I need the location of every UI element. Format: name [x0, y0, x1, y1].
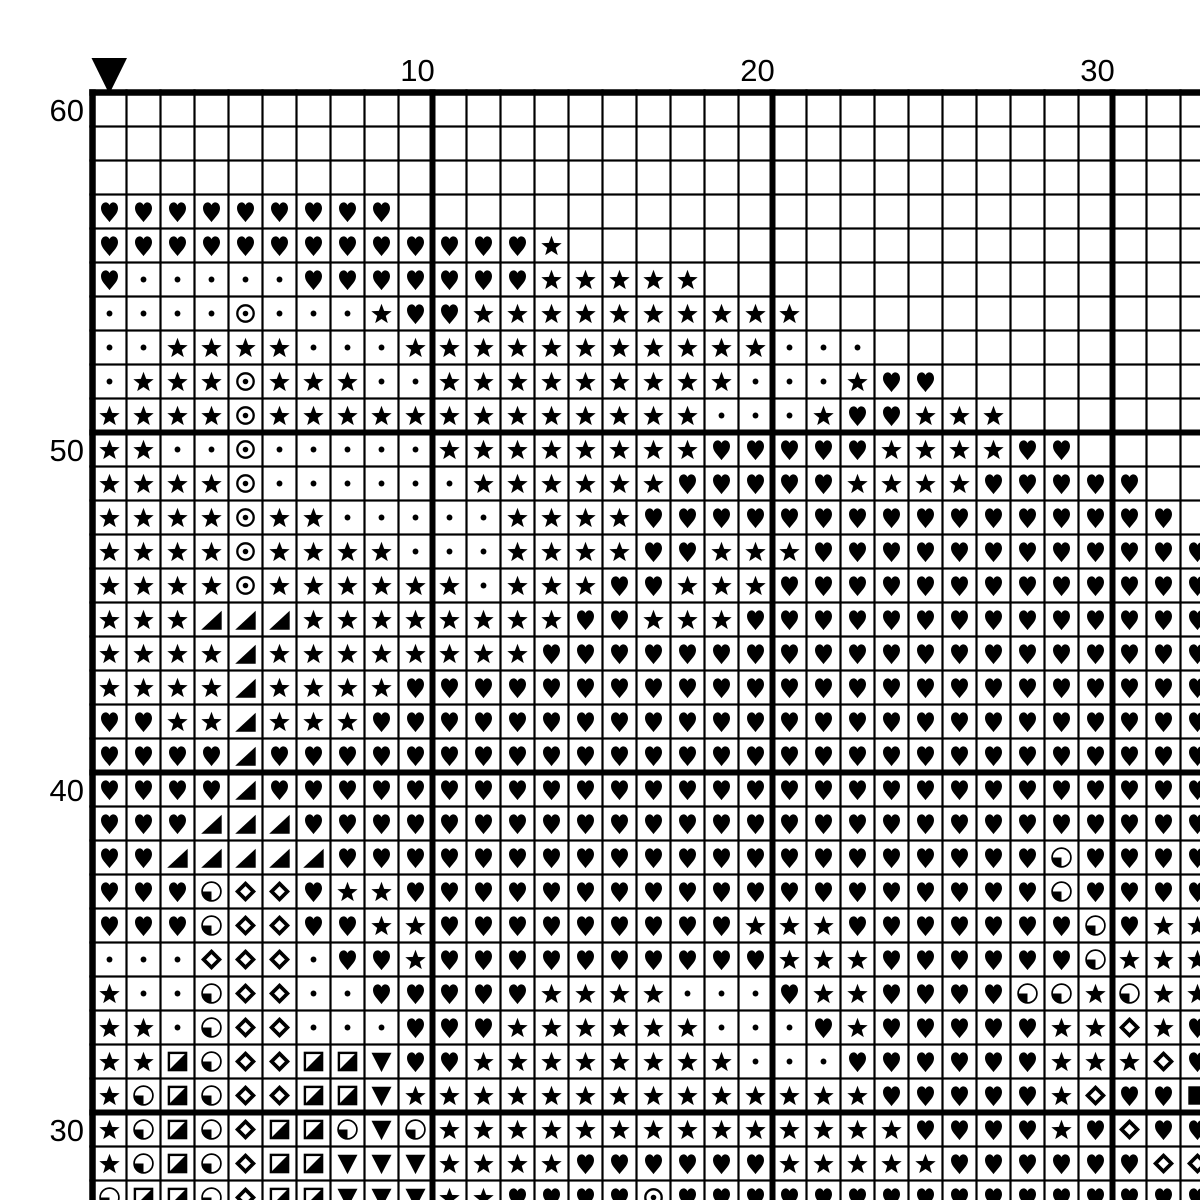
svg-text:30: 30: [50, 1113, 84, 1148]
svg-text:10: 10: [400, 53, 434, 88]
svg-text:40: 40: [50, 773, 84, 808]
svg-text:30: 30: [1080, 53, 1114, 88]
svg-text:50: 50: [50, 433, 84, 468]
svg-text:60: 60: [50, 93, 84, 128]
svg-text:20: 20: [740, 53, 774, 88]
